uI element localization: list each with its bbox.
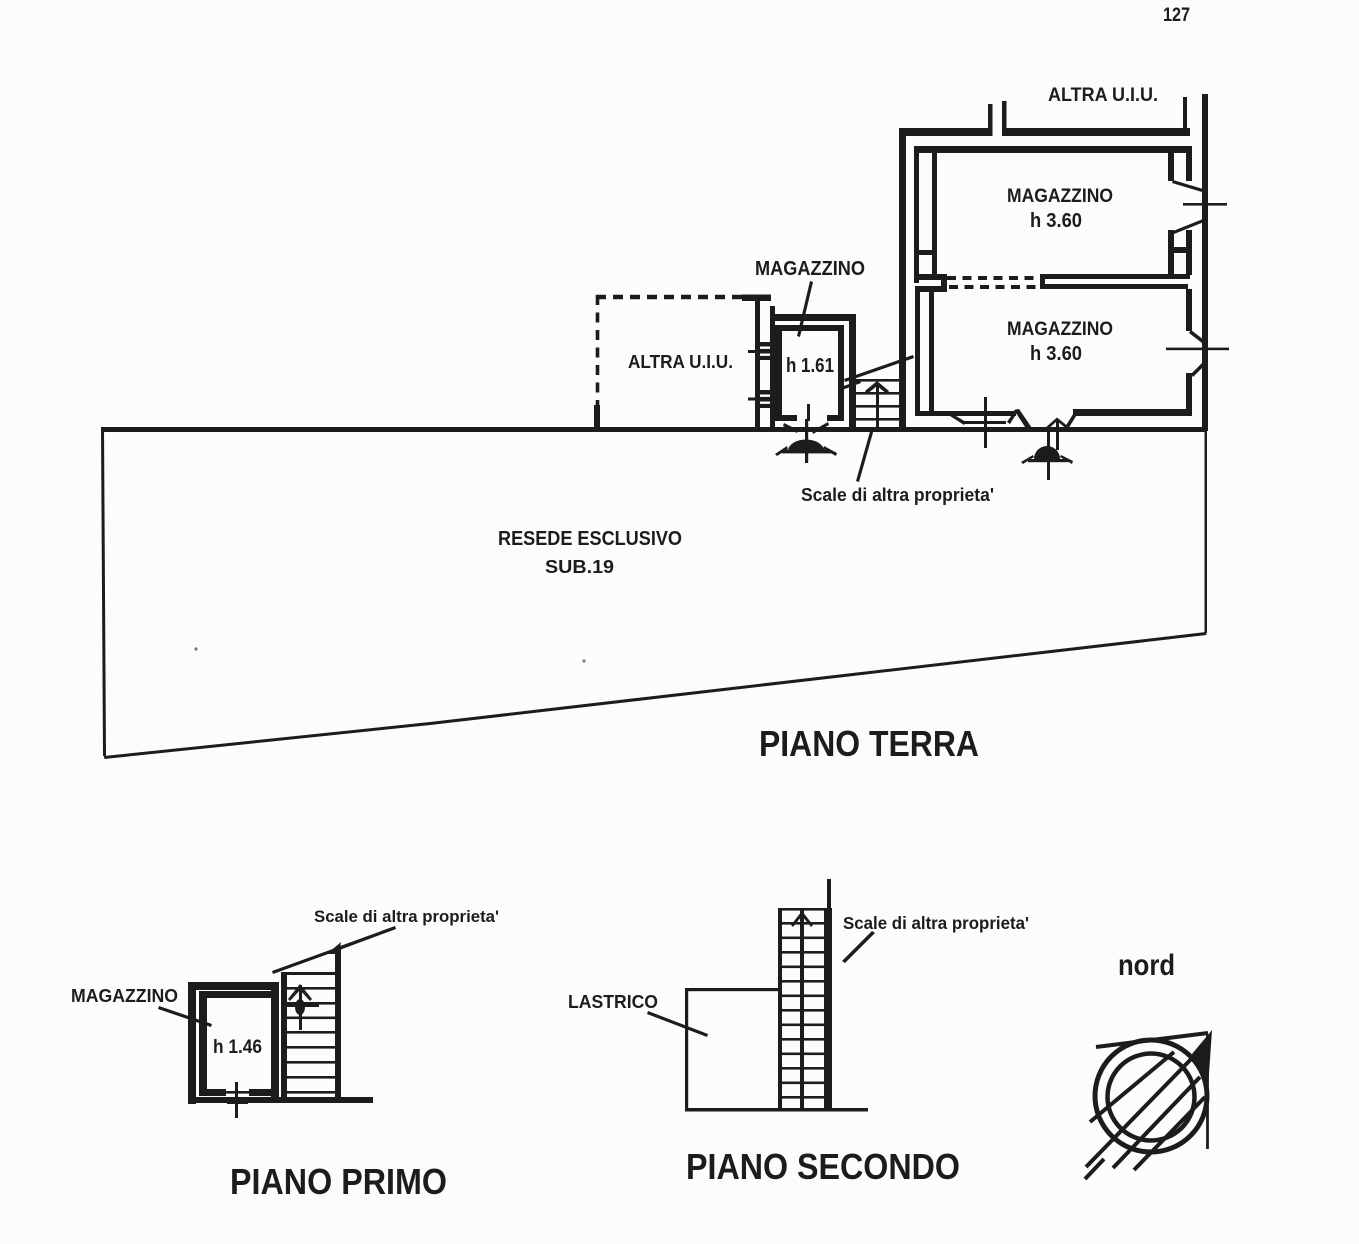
svg-text:SUB.19: SUB.19 xyxy=(545,557,614,577)
svg-text:MAGAZZINO: MAGAZZINO xyxy=(1007,185,1113,207)
svg-text:PIANO TERRA: PIANO TERRA xyxy=(759,723,979,764)
svg-text:Scale di altra proprieta': Scale di altra proprieta' xyxy=(314,907,499,926)
svg-text:RESEDE ESCLUSIVO: RESEDE ESCLUSIVO xyxy=(498,528,682,550)
svg-text:ALTRA U.I.U.: ALTRA U.I.U. xyxy=(628,351,733,372)
svg-text:MAGAZZINO: MAGAZZINO xyxy=(1007,318,1113,340)
svg-text:PIANO SECONDO: PIANO SECONDO xyxy=(686,1146,960,1187)
svg-text:127: 127 xyxy=(1163,5,1190,26)
svg-text:h 1.46: h 1.46 xyxy=(213,1037,262,1058)
svg-text:h 3.60: h 3.60 xyxy=(1030,343,1082,365)
svg-text:ALTRA U.I.U.: ALTRA U.I.U. xyxy=(1048,85,1158,106)
svg-text:nord: nord xyxy=(1118,949,1175,982)
svg-text:MAGAZZINO: MAGAZZINO xyxy=(755,258,865,280)
svg-text:LASTRICO: LASTRICO xyxy=(568,992,658,1012)
svg-text:Scale di altra proprieta': Scale di altra proprieta' xyxy=(843,913,1029,933)
svg-text:h 3.60: h 3.60 xyxy=(1030,210,1082,232)
svg-text:PIANO PRIMO: PIANO PRIMO xyxy=(230,1161,447,1202)
svg-text:MAGAZZINO: MAGAZZINO xyxy=(71,986,178,1006)
svg-text:Scale di altra proprieta': Scale di altra proprieta' xyxy=(801,485,994,505)
svg-text:h 1.61: h 1.61 xyxy=(786,355,834,377)
